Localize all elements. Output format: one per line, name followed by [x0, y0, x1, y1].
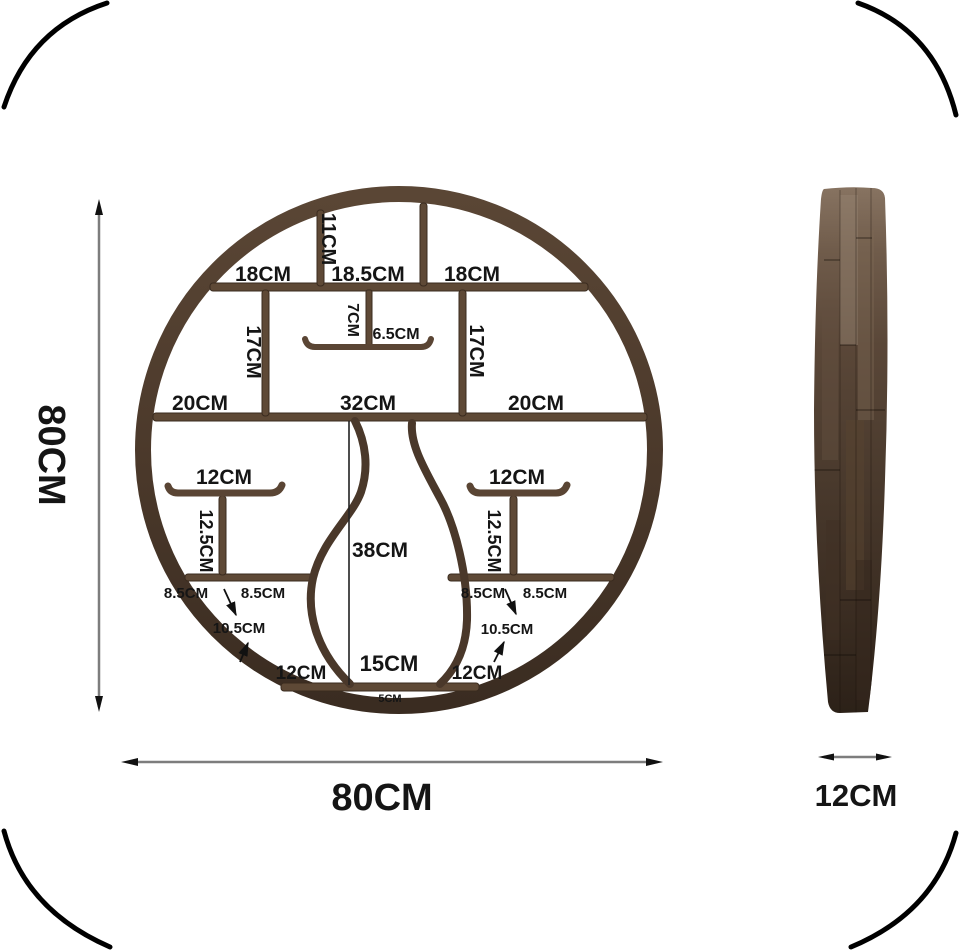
label-left-diagonal: 10.5CM: [213, 620, 266, 637]
product-dimension-diagram: 11CM 18CM 18.5CM 18CM 7CM 6.5CM 17CM 17C…: [0, 0, 960, 952]
thickness-dim-arrow-left: [818, 754, 834, 761]
label-vase-height: 38CM: [352, 539, 408, 562]
dim-label-overall-height: 80CM: [30, 404, 72, 505]
corner-arc-top-right: [858, 3, 956, 115]
corner-arc-top-left: [4, 3, 107, 107]
t-post-right: [510, 496, 517, 575]
label-left-t-shelf: 12CM: [196, 466, 252, 489]
label-left-gap-1: 8.5CM: [164, 585, 208, 602]
label-base-gap: 5CM: [378, 693, 401, 705]
height-dim-arrow-top: [95, 199, 103, 215]
shelf-bottom: [281, 683, 479, 691]
label-mini-shelf: 6.5CM: [372, 326, 419, 343]
label-top-divider: 11CM: [317, 213, 339, 265]
corner-arc-bottom-left: [4, 831, 110, 947]
label-middle-row-left: 20CM: [172, 392, 228, 415]
dim-label-thickness: 12CM: [815, 778, 898, 813]
arrow-left-down: [224, 589, 236, 615]
corner-arc-bottom-right: [851, 833, 956, 947]
label-top-row-right: 18CM: [444, 263, 500, 286]
label-upper-left-divider: 17CM: [242, 325, 264, 378]
label-left-gap-2: 8.5CM: [241, 585, 285, 602]
shelf-lower-left: [185, 574, 315, 581]
shelf-lower-right: [448, 574, 614, 581]
label-right-gap-2: 8.5CM: [523, 585, 567, 602]
stub-center: [366, 290, 372, 346]
dim-label-overall-width: 80CM: [331, 777, 432, 819]
thickness-dim-arrow-right: [876, 754, 892, 761]
label-top-row-center: 18.5CM: [331, 263, 405, 286]
label-right-t-post: 12.5CM: [484, 509, 504, 572]
arrow-right-down: [505, 589, 516, 614]
height-dim-arrow-bottom: [95, 696, 103, 712]
label-bottom-row-right: 12CM: [452, 663, 503, 684]
label-right-diagonal: 10.5CM: [481, 621, 534, 638]
vase-curve-right: [412, 423, 467, 684]
t-post-left: [219, 496, 226, 575]
label-upper-right-divider: 17CM: [465, 324, 487, 377]
width-dim-arrow-left: [121, 758, 138, 766]
label-middle-row-right: 20CM: [508, 392, 564, 415]
diagram-canvas: 11CM 18CM 18.5CM 18CM 7CM 6.5CM 17CM 17C…: [0, 0, 960, 952]
label-middle-row-center: 32CM: [340, 392, 396, 415]
label-bottom-row-left: 12CM: [276, 663, 327, 684]
front-view-shelf: 11CM 18CM 18.5CM 18CM 7CM 6.5CM 17CM 17C…: [143, 194, 655, 706]
label-right-t-shelf: 12CM: [489, 466, 545, 489]
label-bottom-row-center: 15CM: [360, 651, 419, 676]
label-right-gap-1: 8.5CM: [461, 585, 505, 602]
arrow-right-up: [494, 642, 504, 662]
label-top-row-left: 18CM: [235, 263, 291, 286]
divider-top-right: [420, 203, 427, 286]
label-center-stub: 7CM: [344, 303, 361, 337]
width-dim-arrow-right: [646, 758, 663, 766]
side-view-plank: [814, 187, 888, 713]
label-left-t-post: 12.5CM: [196, 509, 216, 572]
divider-mid-right: [459, 290, 466, 416]
